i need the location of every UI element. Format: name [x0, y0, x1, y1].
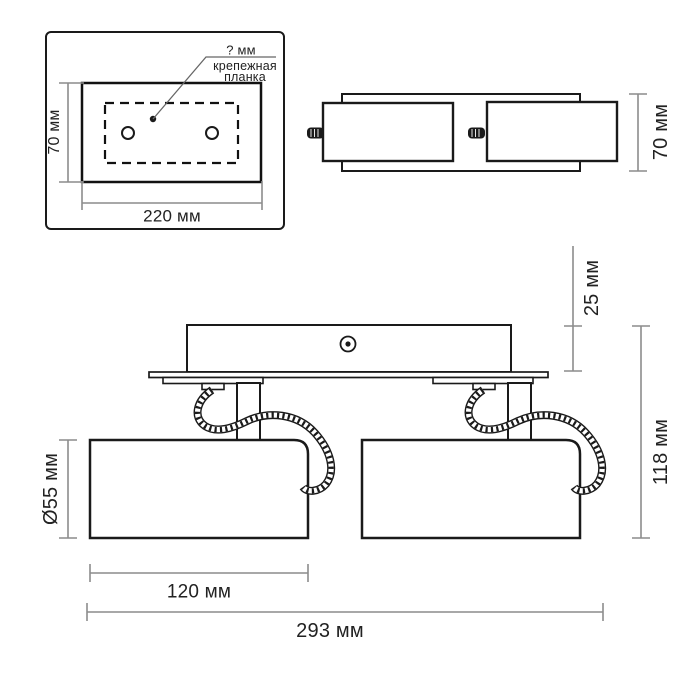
left-stem — [237, 383, 260, 441]
left-adjust-knob — [307, 128, 324, 139]
mounting-bar-label: крепежная планка — [213, 61, 277, 83]
mounting-hole-right — [206, 127, 218, 139]
mounting-bar-label-line2: планка — [213, 72, 277, 83]
shade-length-dimension — [90, 564, 308, 582]
mounting-hole-left — [122, 127, 134, 139]
shade-length-label: 120 мм — [167, 583, 231, 602]
drawing-linework — [0, 0, 700, 700]
left-shade-top-outline — [323, 103, 453, 161]
total-height-label: 118 мм — [651, 419, 671, 485]
technical-drawing: ? мм крепежная планка 70 мм 220 мм 70 мм… — [0, 0, 700, 700]
left-cable-gland — [202, 384, 224, 390]
top-plan-view — [307, 94, 647, 171]
shade-diameter-label: Ø55 мм — [41, 453, 61, 525]
left-shade-outline — [90, 440, 308, 538]
inset-plate-width-label: 220 мм — [143, 208, 201, 225]
total-height-dimension — [632, 326, 650, 538]
total-width-dimension — [87, 603, 603, 621]
base-screw-center — [345, 341, 350, 346]
ceiling-plate — [149, 372, 548, 378]
base-offset-dimension — [564, 246, 582, 371]
right-shade-outline — [362, 440, 580, 538]
hole-diameter-label: ? мм — [226, 44, 256, 57]
right-shade-top-outline — [487, 102, 617, 161]
right-adjust-knob — [468, 128, 485, 139]
right-cable-gland — [473, 384, 495, 390]
right-stem — [508, 383, 531, 441]
total-width-label: 293 мм — [296, 621, 364, 641]
inset-plate-height-label: 70 мм — [47, 109, 63, 154]
front-elevation-view — [59, 246, 650, 621]
top-view-depth-label: 70 мм — [651, 104, 671, 160]
depth-dimension — [629, 94, 647, 171]
base-offset-label: 25 мм — [582, 260, 602, 316]
